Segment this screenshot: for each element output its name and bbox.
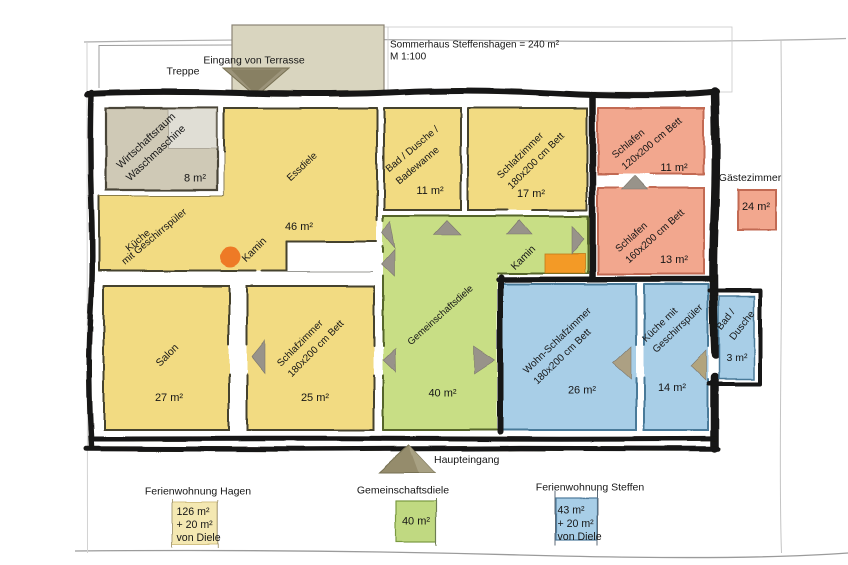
svg-text:3 m²: 3 m² xyxy=(727,352,749,364)
svg-text:Eingang von Terrasse: Eingang von Terrasse xyxy=(203,55,305,67)
svg-text:24 m²: 24 m² xyxy=(742,201,770,213)
svg-text:17 m²: 17 m² xyxy=(517,188,545,200)
svg-text:Ferienwohnung Hagen: Ferienwohnung Hagen xyxy=(145,486,251,498)
svg-text:40 m²: 40 m² xyxy=(402,516,430,528)
svg-text:+ 20 m²: + 20 m² xyxy=(177,519,214,531)
svg-text:Sommerhaus Steffenshagen = 240: Sommerhaus Steffenshagen = 240 m² xyxy=(390,40,560,51)
svg-text:13 m²: 13 m² xyxy=(660,254,688,266)
svg-text:Gästezimmer: Gästezimmer xyxy=(719,172,782,184)
svg-text:M 1:100: M 1:100 xyxy=(390,52,427,63)
svg-text:11 m²: 11 m² xyxy=(660,162,688,174)
svg-text:+ 20 m²: + 20 m² xyxy=(558,518,595,530)
svg-text:von Diele: von Diele xyxy=(558,531,602,543)
svg-text:25 m²: 25 m² xyxy=(301,392,329,404)
svg-text:40 m²: 40 m² xyxy=(428,388,456,400)
svg-text:Gemeinschaftsdiele: Gemeinschaftsdiele xyxy=(357,485,449,497)
svg-text:Haupteingang: Haupteingang xyxy=(434,454,500,466)
svg-text:126 m²: 126 m² xyxy=(177,506,210,518)
svg-text:27 m²: 27 m² xyxy=(155,392,183,404)
svg-text:8 m²: 8 m² xyxy=(184,173,206,185)
svg-text:46 m²: 46 m² xyxy=(285,221,313,233)
svg-text:43 m²: 43 m² xyxy=(558,505,586,517)
svg-text:Treppe: Treppe xyxy=(167,66,200,78)
svg-text:11 m²: 11 m² xyxy=(416,185,444,197)
svg-text:Ferienwohnung Steffen: Ferienwohnung Steffen xyxy=(536,482,645,494)
svg-text:26 m²: 26 m² xyxy=(568,385,596,397)
svg-text:von Diele: von Diele xyxy=(177,532,221,544)
svg-text:14 m²: 14 m² xyxy=(658,382,686,394)
